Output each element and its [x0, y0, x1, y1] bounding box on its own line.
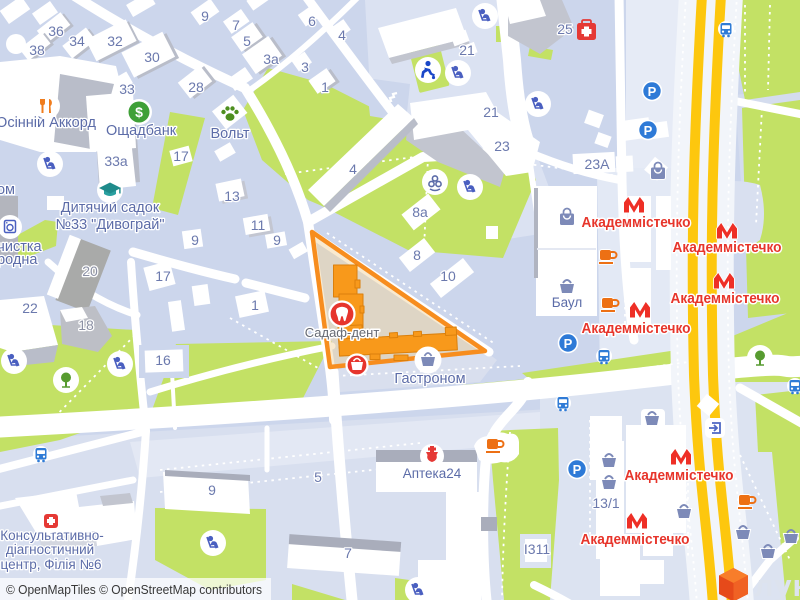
svg-text:7: 7: [232, 17, 240, 33]
svg-text:9: 9: [273, 232, 281, 248]
svg-text:Гастроном: Гастроном: [394, 371, 465, 387]
svg-text:33: 33: [119, 81, 135, 97]
svg-text:4: 4: [349, 161, 357, 177]
svg-text:Аптека24: Аптека24: [403, 466, 462, 481]
svg-text:23A: 23A: [585, 156, 611, 172]
svg-text:Академмістечко: Академмістечко: [625, 468, 734, 484]
svg-text:діагностичний: діагностичний: [6, 542, 94, 557]
svg-text:Академмістечко: Академмістечко: [671, 291, 780, 307]
svg-text:21: 21: [459, 42, 475, 58]
svg-text:3: 3: [301, 59, 309, 75]
svg-text:Вольт: Вольт: [211, 126, 250, 142]
svg-text:18: 18: [78, 317, 94, 333]
svg-text:33a: 33a: [104, 153, 128, 169]
svg-text:25: 25: [557, 21, 573, 37]
svg-text:9: 9: [201, 8, 209, 24]
svg-text:8a: 8a: [412, 204, 428, 220]
svg-text:$: $: [135, 104, 143, 120]
svg-text:21: 21: [483, 104, 499, 120]
svg-text:Баул: Баул: [552, 295, 583, 310]
svg-text:Академмістечко: Академмістечко: [673, 240, 782, 256]
svg-text:34: 34: [69, 33, 85, 49]
svg-text:36: 36: [48, 23, 64, 39]
svg-text:1: 1: [251, 297, 259, 313]
svg-text:Народна: Народна: [0, 252, 38, 268]
svg-text:38: 38: [29, 42, 45, 58]
svg-text:10: 10: [440, 268, 456, 284]
svg-text:І311: І311: [524, 541, 550, 557]
svg-text:ном: ном: [0, 182, 15, 198]
svg-text:28: 28: [188, 79, 204, 95]
svg-text:Академмістечко: Академмістечко: [582, 321, 691, 337]
svg-text:17: 17: [173, 148, 189, 164]
svg-text:8: 8: [413, 247, 421, 263]
svg-text:23: 23: [494, 138, 510, 154]
svg-text:7: 7: [344, 545, 352, 561]
svg-text:16: 16: [155, 352, 171, 368]
svg-text:30: 30: [144, 49, 160, 65]
svg-text:© OpenMapTiles © OpenStreetMap: © OpenMapTiles © OpenStreetMap contribut…: [6, 582, 262, 597]
svg-text:20: 20: [82, 263, 98, 279]
svg-text:13/1: 13/1: [592, 495, 619, 511]
svg-text:11: 11: [251, 217, 266, 233]
svg-text:4: 4: [338, 27, 346, 43]
svg-text:Ощадбанк: Ощадбанк: [106, 123, 177, 139]
svg-text:22: 22: [22, 300, 38, 316]
svg-text:№33 "Дивограй": №33 "Дивограй": [55, 217, 164, 233]
svg-text:6: 6: [308, 13, 316, 29]
svg-text:9: 9: [191, 232, 199, 248]
svg-text:Академмістечко: Академмістечко: [581, 532, 690, 548]
svg-text:32: 32: [107, 33, 123, 49]
svg-text:5: 5: [243, 33, 251, 49]
svg-text:Академмістечко: Академмістечко: [582, 215, 691, 231]
svg-text:9: 9: [208, 482, 216, 498]
svg-text:5: 5: [314, 469, 322, 485]
svg-text:лун: лун: [754, 568, 800, 600]
svg-text:1: 1: [321, 79, 329, 95]
svg-text:3a: 3a: [263, 51, 279, 67]
svg-text:13: 13: [224, 188, 240, 204]
svg-text:центр, Філія №6: центр, Філія №6: [1, 557, 102, 572]
svg-text:17: 17: [155, 268, 171, 284]
